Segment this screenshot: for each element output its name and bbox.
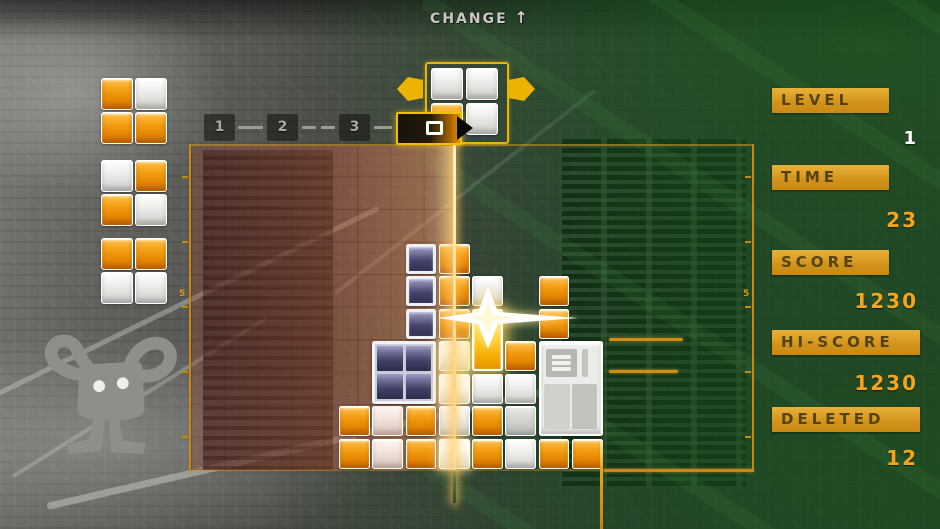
deleted-value: 12 [772, 446, 920, 470]
left-ruler-label: 5 [179, 289, 185, 299]
block [539, 439, 570, 469]
block [339, 439, 370, 469]
queue-piece-2 [101, 160, 169, 228]
sequence-step-2: 2 [267, 114, 298, 141]
queue-cell [135, 78, 167, 110]
queue-cell [101, 112, 133, 144]
queue-cell [135, 194, 167, 226]
block [406, 244, 437, 274]
sequence-step-3: 3 [339, 114, 370, 141]
merged-block-panel [572, 384, 597, 430]
drop-indicator-line [600, 440, 603, 529]
ruler-tick [182, 306, 188, 308]
navy-subcell [406, 374, 432, 399]
ruler-tick [745, 371, 751, 373]
block [572, 439, 603, 469]
block [406, 406, 437, 436]
deleted-label: DELETED [772, 407, 920, 432]
level-value: 1 [772, 128, 920, 149]
block [472, 374, 503, 404]
sequence-dash [302, 126, 316, 129]
sequence-current-box [396, 112, 462, 145]
sequence-dash [238, 126, 263, 129]
queue-cell [101, 160, 133, 192]
right-ruler-label: 5 [743, 289, 749, 299]
navy-subcell [377, 346, 403, 371]
block [406, 439, 437, 469]
accent-line [609, 338, 683, 341]
change-indicator: CHANGE ↑ [410, 8, 550, 27]
ruler-tick [182, 176, 188, 178]
block [539, 341, 603, 436]
block [372, 406, 403, 436]
preview-cell [466, 68, 498, 100]
merged-block-panel [582, 349, 588, 376]
sequence-dash [321, 126, 335, 129]
block [372, 439, 403, 469]
sequence-dash [374, 126, 392, 129]
level-label: LEVEL [772, 88, 889, 113]
hiscore-label: HI-SCORE [772, 330, 920, 355]
queue-cell [135, 238, 167, 270]
current-marker-icon [426, 121, 443, 135]
block [472, 406, 503, 436]
accent-line [609, 370, 678, 373]
queue-cell [135, 160, 167, 192]
time-value: 23 [772, 208, 920, 232]
bull-mascot-icon [34, 335, 182, 463]
game-screen: 5 5 CHANGE ↑ 1 2 3 LEVEL 1 TIME 23 [0, 0, 940, 529]
ruler-tick [182, 371, 188, 373]
block [339, 406, 370, 436]
ruler-tick [745, 306, 751, 308]
queue-cell [101, 194, 133, 226]
ruler-tick [745, 176, 751, 178]
queue-cell [101, 78, 133, 110]
sequence-step-1: 1 [204, 114, 235, 141]
queue-cell [135, 112, 167, 144]
queue-piece-1 [101, 78, 169, 146]
block [505, 406, 536, 436]
block [505, 439, 536, 469]
score-value: 1230 [772, 289, 920, 313]
playfield-right-border [752, 144, 754, 472]
queue-cell [101, 238, 133, 270]
block [505, 374, 536, 404]
change-label: CHANGE [430, 11, 508, 27]
ruler-tick [745, 241, 751, 243]
block [472, 439, 503, 469]
time-label: TIME [772, 165, 889, 190]
queue-cell [101, 272, 133, 304]
score-label: SCORE [772, 250, 889, 275]
preview-cell [431, 68, 463, 100]
pointer-triangle-icon [457, 116, 473, 140]
queue-cell [135, 272, 167, 304]
hiscore-value: 1230 [772, 371, 920, 395]
ruler-tick [745, 436, 751, 438]
sparkle-icon [420, 285, 580, 355]
navy-subcell [377, 374, 403, 399]
merged-block-panel [544, 384, 570, 430]
playfield-bottom-border-bright [604, 469, 754, 472]
queue-piece-3 [101, 238, 169, 306]
ruler-tick [182, 436, 188, 438]
ruler-tick [182, 241, 188, 243]
up-arrow-icon: ↑ [515, 8, 530, 27]
